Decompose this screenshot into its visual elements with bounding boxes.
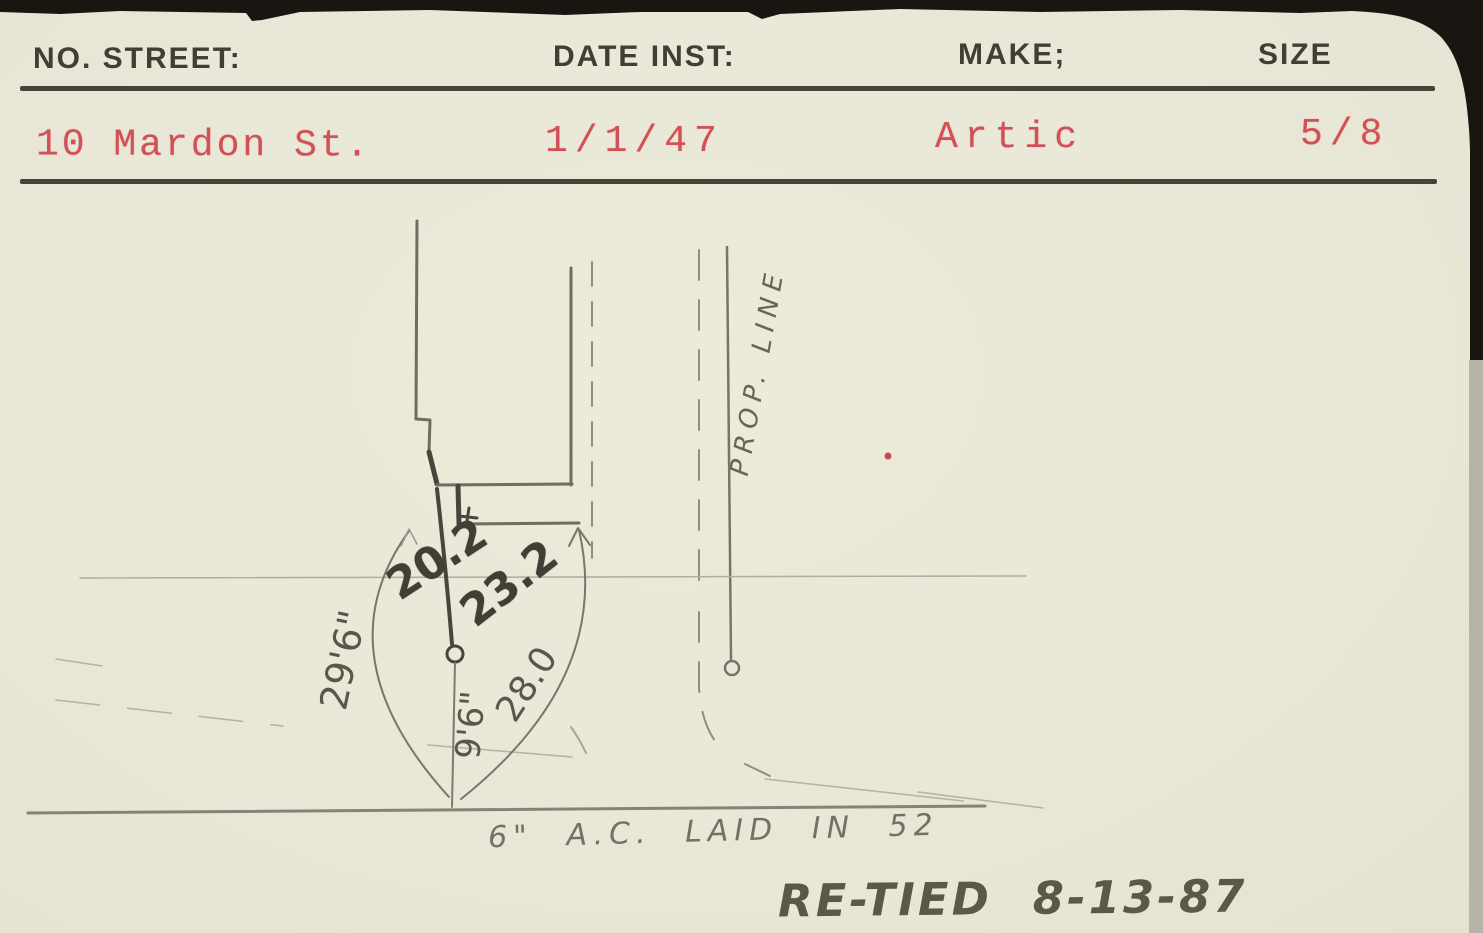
building-outline-left xyxy=(416,221,430,452)
faint-dash-left-a xyxy=(56,659,102,666)
faint-dash-tail xyxy=(571,727,586,753)
re-tied-note: RE-TIED 8-13-87 xyxy=(778,870,1248,928)
measurement-9ft6in: 9'6" xyxy=(448,689,494,760)
torn-top-edge xyxy=(0,0,1483,368)
property-line-marker xyxy=(725,661,739,675)
faint-diagonal-right-a xyxy=(765,779,963,801)
card-right-edge-shadow xyxy=(1469,360,1483,933)
index-card: NO. STREET: DATE INST: MAKE; SIZE 10 Mar… xyxy=(0,0,1483,933)
building-corner-dark xyxy=(429,452,437,484)
faint-dash-left-b xyxy=(56,700,283,726)
red-ink-dot xyxy=(885,453,892,460)
service-node-circle xyxy=(447,646,463,662)
